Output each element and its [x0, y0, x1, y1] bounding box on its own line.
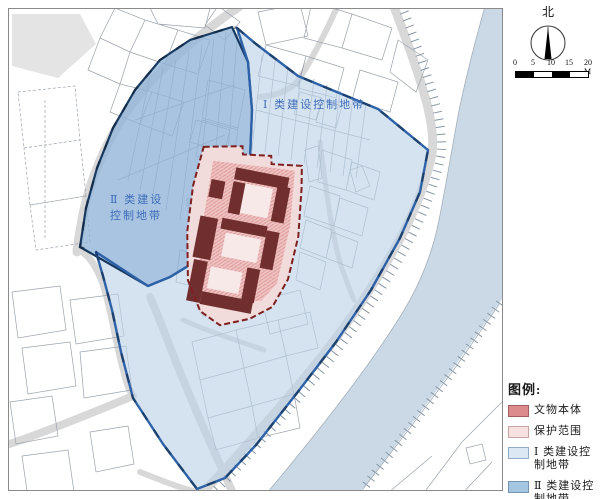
scale-bar-segments: [515, 71, 589, 78]
scale-tick-5: 5: [531, 58, 535, 67]
protection-swatch: [508, 426, 529, 438]
north-label: 北: [524, 5, 572, 19]
legend: 图例: 文物本体 保护范围 Ⅰ 类建设控制地带 Ⅱ 类建设控制地带: [508, 379, 600, 499]
legend-item-protection: 保护范围: [508, 425, 600, 438]
compass-icon: [524, 19, 572, 63]
legend-item-zone2: Ⅱ 类建设控制地带: [508, 480, 600, 499]
relic-swatch: [508, 405, 529, 417]
legend-item-label: 文物本体: [534, 404, 582, 417]
scale-tick-0: 0: [513, 58, 517, 67]
zone1-map-label: Ⅰ 类建设控制地带: [263, 97, 365, 111]
scale-bar: 0 5 10 15 20 M: [509, 58, 599, 84]
zone2-map-label-line1: Ⅱ 类建设: [110, 192, 163, 206]
legend-item-label: 保护范围: [534, 425, 582, 438]
scale-tick-10: 10: [547, 58, 555, 67]
zone2-map-label-line2: 控制地带: [110, 208, 162, 222]
legend-item-zone1: Ⅰ 类建设控制地带: [508, 446, 600, 472]
legend-item-relic: 文物本体: [508, 404, 600, 417]
scale-tick-15: 15: [565, 58, 573, 67]
legend-item-label: Ⅱ 类建设控制地带: [534, 480, 594, 499]
zone2-swatch: [508, 481, 529, 493]
heritage-protection-plan: Ⅰ 类建设控制地带 Ⅱ 类建设 控制地带 北 0 5 10 15 20 M 图例…: [0, 0, 600, 499]
zone1-swatch: [508, 447, 529, 459]
legend-item-label: Ⅰ 类建设控制地带: [534, 446, 591, 472]
legend-title: 图例:: [508, 379, 600, 398]
